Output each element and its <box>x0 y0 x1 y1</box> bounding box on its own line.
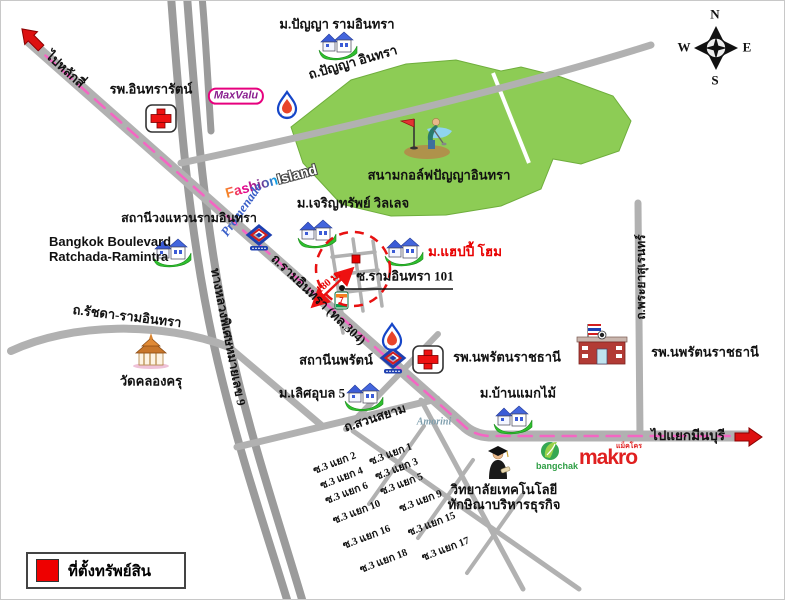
nopparat-hospital-icon <box>413 346 443 373</box>
compass-south-label: S <box>711 74 718 89</box>
graduate-icon <box>488 446 510 479</box>
gas-station-icon <box>383 324 401 350</box>
direction-minburi-label: ไปแยกมีนบุรี <box>651 428 725 444</box>
bangkok-boulevard-label: Bangkok Boulevard Ratchada-Ramintra <box>49 235 171 265</box>
bangchak-logo-icon <box>541 442 559 460</box>
phraya-suren-road-label: ถ.พระยาสุเรนทร์ <box>635 234 649 319</box>
compass-icon <box>698 30 734 66</box>
banmakmai-label: ม.บ้านแมกไม้ <box>480 387 556 402</box>
happy-home-label: ม.แฮปปี้ โฮม <box>428 244 502 260</box>
happy-home-village-icon <box>385 238 423 266</box>
maxvalu-logo: MaxValu <box>208 88 264 105</box>
soi-junction-dot <box>339 285 345 291</box>
charoensap-label: ม.เจริญทรัพย์ วิลเลจ <box>297 197 409 212</box>
lertubon-label: ม.เลิศอุบล 5 <box>279 387 345 402</box>
golf-course-label: สนามกอล์ฟปัญญาอินทรา <box>368 169 511 184</box>
property-marker <box>352 255 360 263</box>
suan-siam-road <box>237 399 437 447</box>
wongwaen-station-label: สถานีวงแหวนรามอินทรา <box>121 211 257 225</box>
compass-north-label: N <box>710 8 719 23</box>
panya-village-label: ม.ปัญญา รามอินทรา <box>279 18 394 33</box>
legend-label: ที่ตั้งทรัพย์สิน <box>68 559 151 583</box>
golf-course-area <box>291 60 631 216</box>
soi-101-label: ซ.รามอินทรา 101 <box>356 270 453 285</box>
ratchada-ramintra-road <box>11 329 229 351</box>
indra-hospital-icon <box>146 105 176 132</box>
map-canvas: 7 <box>0 0 785 600</box>
banmakmai-village-icon <box>494 406 532 434</box>
college-label: วิทยาลัยเทคโนโลยี ทักษิณาบริหารธุรกิจ <box>448 483 561 513</box>
nopparat-station-label: สถานีนพรัตน์ <box>299 354 373 369</box>
indra-hospital-label: รพ.อินทรารัตน์ <box>110 83 193 98</box>
government-building-icon <box>577 324 627 364</box>
amorini-logo: Amorini <box>417 416 451 428</box>
nopparat-hospital-label: รพ.นพรัตนราชธานี <box>453 351 561 366</box>
nopparat-hospital-building-label: รพ.นพรัตนราชธานี <box>651 346 759 361</box>
makro-logo-thai: แม็คโคร <box>616 443 642 451</box>
bangchak-logo-text: bangchak <box>536 461 578 471</box>
temple-icon <box>133 333 169 369</box>
compass-west-label: W <box>678 41 691 56</box>
legend-property-swatch <box>36 559 59 582</box>
compass-east-label: E <box>743 41 752 56</box>
legend-box: ที่ตั้งทรัพย์สิน <box>26 552 186 589</box>
wat-klongkru-label: วัดคลองครุ <box>120 375 182 390</box>
charoensap-village-icon <box>298 220 336 248</box>
gas-station-icon <box>278 92 296 118</box>
